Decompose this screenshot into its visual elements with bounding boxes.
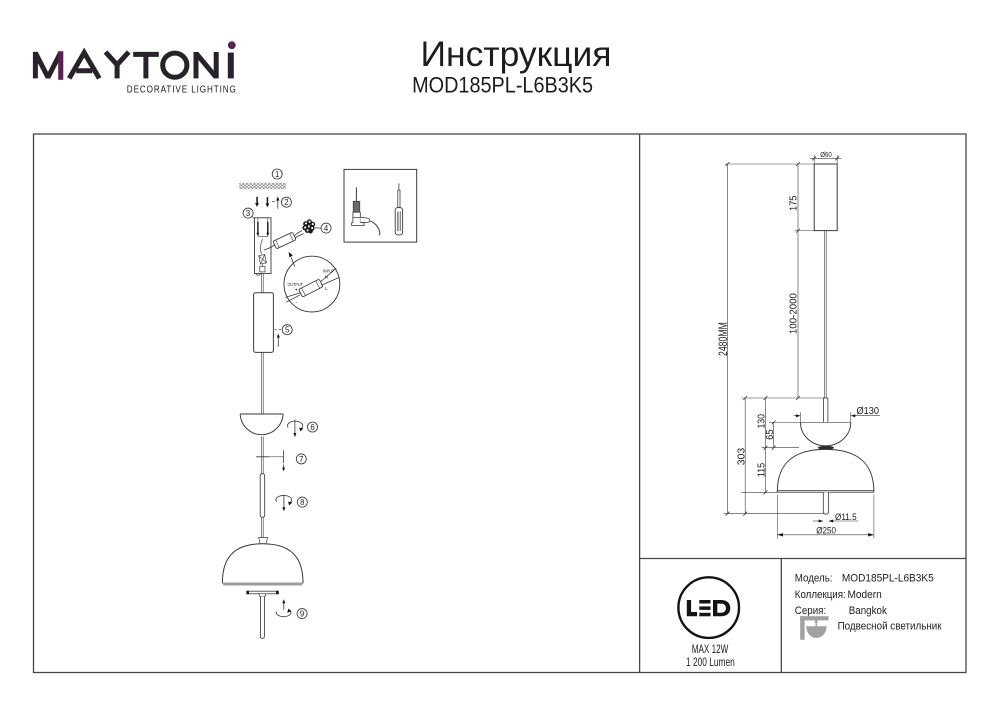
svg-text:-: - xyxy=(295,299,297,305)
svg-text:65: 65 xyxy=(765,429,776,440)
svg-text:Модель:: Модель: xyxy=(795,572,833,584)
svg-text:175: 175 xyxy=(789,195,800,211)
svg-text:MOD185PL-L6B3K5: MOD185PL-L6B3K5 xyxy=(842,572,934,584)
svg-text:Подвесной светильник: Подвесной светильник xyxy=(838,621,942,633)
svg-text:8: 8 xyxy=(300,498,304,507)
svg-text:1 200 Lumen: 1 200 Lumen xyxy=(686,656,735,669)
svg-text:Ø250: Ø250 xyxy=(816,525,836,536)
svg-text:100-2000: 100-2000 xyxy=(789,293,800,334)
svg-text:Коллекция:: Коллекция: xyxy=(795,589,846,601)
svg-text:MOD185PL-L6B3K5: MOD185PL-L6B3K5 xyxy=(412,72,593,97)
svg-text:4: 4 xyxy=(324,224,329,233)
svg-text:MAX 12W: MAX 12W xyxy=(692,643,729,656)
svg-text:9: 9 xyxy=(300,610,304,619)
svg-text:303: 303 xyxy=(737,448,748,466)
svg-text:Серия:: Серия: xyxy=(795,605,826,617)
svg-text:130: 130 xyxy=(756,414,767,429)
svg-text:Ø11.5: Ø11.5 xyxy=(835,512,857,522)
svg-text:7: 7 xyxy=(299,455,303,464)
svg-text:Ø130: Ø130 xyxy=(857,406,880,417)
svg-text:2: 2 xyxy=(284,198,288,207)
svg-text:5: 5 xyxy=(285,326,290,335)
svg-text:2480MM: 2480MM xyxy=(718,322,730,356)
svg-text:6: 6 xyxy=(310,423,314,432)
svg-text:INPUT: INPUT xyxy=(323,268,334,273)
svg-text:Ø60: Ø60 xyxy=(820,150,832,159)
svg-text:N: N xyxy=(325,275,328,280)
svg-text:Инструкция: Инструкция xyxy=(421,35,612,74)
svg-text:3: 3 xyxy=(246,209,250,218)
svg-text:Bangkok: Bangkok xyxy=(849,605,888,617)
svg-text:115: 115 xyxy=(756,462,767,477)
svg-text:Modern: Modern xyxy=(848,589,882,601)
svg-text:L: L xyxy=(325,286,328,291)
svg-text:DECORATIVE LIGHTING: DECORATIVE LIGHTING xyxy=(127,85,237,96)
svg-text:OUTPUT: OUTPUT xyxy=(288,282,304,287)
svg-text:+: + xyxy=(295,288,298,294)
svg-text:1: 1 xyxy=(275,170,279,179)
